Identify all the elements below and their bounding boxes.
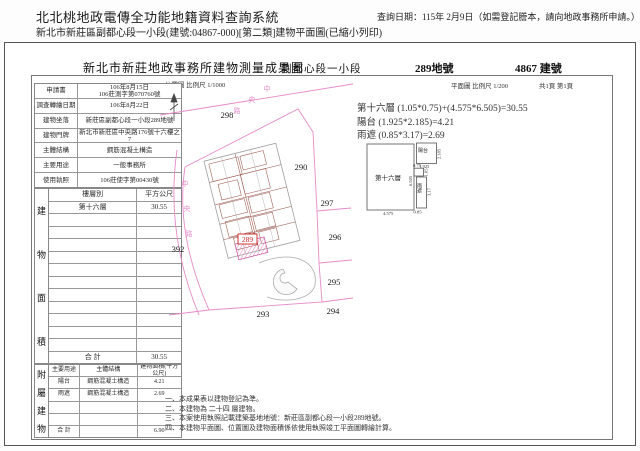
section-name: 副都心段一小段 <box>281 61 362 76</box>
floor-plan-scale: 平面圖 比例尺 1/200 <box>451 80 508 90</box>
floor-cell <box>49 339 137 351</box>
use-cell: 雨遮 <box>49 389 80 400</box>
dim-width: 4.575 <box>383 211 394 216</box>
floor-cell: 樓層別 <box>49 189 137 201</box>
lot-number-label: 296 <box>329 232 342 242</box>
annex-empty-row <box>49 414 181 426</box>
room-label: 第十六層 <box>375 173 401 182</box>
document-subtitle: 新北市新莊區副都心段一小段(建號:04867-000)[第二類]建物平面圖(已縮… <box>36 24 382 39</box>
road-name-char: 中 <box>182 179 189 188</box>
side-char: 物 <box>37 422 46 435</box>
lot-number-label: 298 <box>221 110 234 120</box>
floor-cell: 合 計 <box>49 352 137 364</box>
svg-text:289: 289 <box>242 235 254 244</box>
structure-cell <box>80 402 138 413</box>
footnotes: 一、本成果表以建物登記為準。二、本建物為 二十四 層建物。三、本案使用執照記載建… <box>165 395 595 433</box>
unit-floor-plan: 第十六層 陽台 雨遮 4.575 6.505 1.925 2.185 0.75 … <box>357 137 503 223</box>
note-line: 二、本建物為 二十四 層建物。 <box>165 405 595 415</box>
info-label: 申請書 <box>35 84 78 98</box>
building-number: 4867 建號 <box>515 60 562 76</box>
location-map: 289 298290297296295294293392 中央路中央路 <box>155 77 369 389</box>
dim-height: 6.505 <box>408 175 413 186</box>
use-cell: 主要用途 <box>49 365 80 376</box>
info-label: 調查轉繪日期 <box>35 99 78 113</box>
annex-data-row: 雨遮鋼筋混凝土構造2.69 <box>49 389 181 401</box>
formula-line: 陽台 (1.925*2.185)=4.21 <box>357 117 528 131</box>
formula-line: 第十六層 (1.05*0.75)+(4.575*6.505)=30.55 <box>357 103 528 117</box>
area-table-side-label: 建物面積 <box>35 189 49 363</box>
dim-canopy-h: 3.17 <box>427 187 432 196</box>
info-label: 主要用途 <box>35 158 78 172</box>
info-label: 主體結構 <box>35 143 78 157</box>
note-line: 四、本建物平面圖、位置圖及建物面積係依使用執照竣工平面圖轉繪計算。 <box>165 424 595 434</box>
structure-cell: 主體結構 <box>80 365 138 376</box>
floor-cell <box>49 302 137 314</box>
road-name-char: 中 <box>264 84 271 93</box>
survey-document: 新北市新莊地政事務所建物測量成果圖 副都心段一小段 289地號 4867 建號 … <box>4 42 636 446</box>
side-char: 附 <box>37 368 46 381</box>
lot-number-label: 290 <box>295 162 308 172</box>
floor-cell <box>49 314 137 326</box>
structure-cell: 鋼筋混凝土構造 <box>80 377 138 388</box>
floor-cell <box>49 227 137 239</box>
land-number: 289地號 <box>415 60 454 76</box>
info-label: 使用執照 <box>35 173 78 187</box>
structure-cell <box>80 426 138 437</box>
lot-number-label: 293 <box>257 309 270 319</box>
side-char: 積 <box>37 335 46 348</box>
dim-step-w: 0.75 <box>413 163 422 168</box>
annex-total-row: 合 計6.90 <box>49 426 181 437</box>
side-char: 建 <box>37 204 46 217</box>
road-name-char: 路 <box>234 106 241 115</box>
floor-cell <box>49 327 137 339</box>
floor-cell <box>49 252 137 264</box>
page: { "page": { "title": "北北桃地政電傳全功能地籍資料查詢系統… <box>0 0 640 451</box>
dim-step-h: 1.05 <box>424 168 429 177</box>
canopy-label: 雨遮 <box>416 183 422 194</box>
use-cell <box>49 402 80 413</box>
floor-cell <box>49 214 137 226</box>
side-char: 屬 <box>37 386 46 399</box>
info-label: 建物坐落 <box>35 114 78 128</box>
structure-cell: 鋼筋混凝土構造 <box>80 389 138 400</box>
side-char: 物 <box>37 248 46 261</box>
floor-cell <box>49 264 137 276</box>
dim-canopy-w: 0.85 <box>414 210 423 215</box>
lot-number-label: 297 <box>321 198 334 208</box>
note-line: 一、本成果表以建物登記為準。 <box>165 395 595 405</box>
road-name-char: 路 <box>186 229 193 238</box>
floor-cell <box>49 289 137 301</box>
page-count: 共1頁 第1頁 <box>539 80 573 90</box>
side-char: 建 <box>37 404 46 417</box>
annex-table-side-label: 附屬建物 <box>35 365 49 437</box>
use-cell: 合 計 <box>49 426 80 437</box>
lot-number-label: 294 <box>327 306 341 316</box>
query-date: 查詢日期：115年 2月9日（如需登記謄本，請向地政事務所申請。） <box>377 10 640 23</box>
annex-empty-row <box>49 402 181 414</box>
structure-cell <box>80 414 138 425</box>
office-title: 新北市新莊地政事務所建物測量成果圖 <box>83 59 304 76</box>
subject-lot-label: 289 <box>238 234 257 244</box>
driveway-curve <box>259 257 315 300</box>
floor-cell <box>49 277 137 289</box>
use-cell <box>49 414 80 425</box>
road-name-char: 央 <box>184 204 191 213</box>
balcony-label: 陽台 <box>418 147 428 154</box>
north-arrow-icon <box>170 94 178 121</box>
note-line: 三、本案使用執照記載建築基地地號：新莊區副都心段一小段289地號。 <box>165 414 595 424</box>
side-char: 面 <box>37 291 46 304</box>
use-cell: 陽台 <box>49 377 80 388</box>
floor-cell: 第十六層 <box>49 202 137 214</box>
road-name-char: 央 <box>249 95 256 104</box>
info-label: 建物門牌 <box>35 129 78 143</box>
dim-balcony-h: 2.185 <box>437 148 442 159</box>
lot-number-label: 392 <box>172 244 185 254</box>
floor-cell <box>49 239 137 251</box>
lot-number-label: 295 <box>328 277 341 287</box>
